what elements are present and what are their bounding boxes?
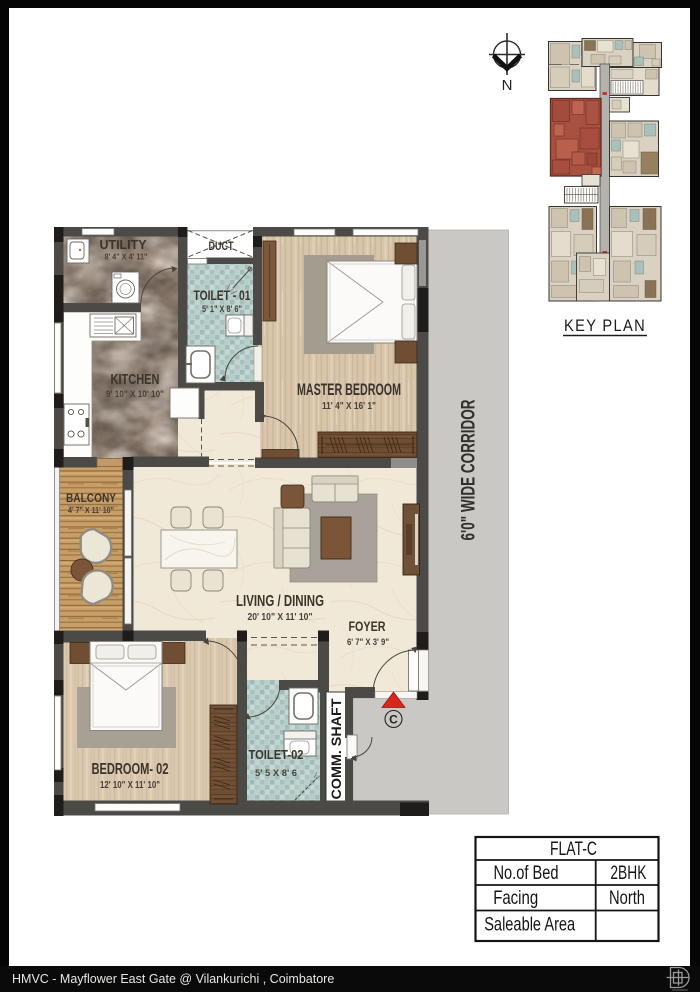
svg-text:MASTER BEDROOM: MASTER BEDROOM (297, 381, 401, 399)
svg-text:North: North (609, 887, 645, 909)
svg-text:11' 4" X 16' 1": 11' 4" X 16' 1" (322, 400, 376, 412)
svg-text:5' 5 X 8' 6: 5' 5 X 8' 6 (255, 768, 297, 779)
svg-text:5' 1" X 8' 6": 5' 1" X 8' 6" (202, 304, 242, 314)
svg-text:UTILITY: UTILITY (100, 238, 148, 252)
svg-text:LIVING / DINING: LIVING / DINING (236, 593, 324, 610)
svg-text:No.of Bed: No.of Bed (494, 862, 559, 884)
svg-text:COMM. SHAFT: COMM. SHAFT (328, 698, 344, 799)
svg-text:9' 10" X 10' 10": 9' 10" X 10' 10" (106, 389, 164, 400)
svg-text:4' 7" X 11' 10": 4' 7" X 11' 10" (68, 505, 114, 515)
svg-text:BALCONY: BALCONY (66, 493, 116, 505)
svg-text:6' 7" X 3' 9": 6' 7" X 3' 9" (347, 637, 389, 648)
svg-text:TOILET - 01: TOILET - 01 (194, 288, 251, 303)
svg-text:N: N (502, 77, 513, 94)
svg-text:FLAT-C: FLAT-C (550, 838, 597, 860)
svg-text:12' 10" X 11' 10": 12' 10" X 11' 10" (100, 780, 160, 791)
svg-text:20' 10" X 11' 10": 20' 10" X 11' 10" (248, 612, 313, 623)
svg-text:C: C (389, 713, 398, 727)
svg-text:Saleable Area: Saleable Area (484, 914, 575, 936)
svg-text:FOYER: FOYER (349, 619, 386, 634)
svg-text:HMVC - Mayflower East Gate @ V: HMVC - Mayflower East Gate @ Vilankurich… (12, 972, 334, 986)
svg-text:KITCHEN: KITCHEN (111, 372, 160, 388)
svg-text:2BHK: 2BHK (610, 862, 646, 884)
svg-text:BEDROOM- 02: BEDROOM- 02 (92, 761, 169, 778)
svg-text:KEY PLAN: KEY PLAN (564, 317, 646, 335)
svg-text:DUCT: DUCT (209, 241, 234, 253)
svg-text:TOILET-02: TOILET-02 (249, 747, 304, 762)
svg-text:6'0" WIDE CORRIDOR: 6'0" WIDE CORRIDOR (459, 399, 480, 540)
svg-text:8' 4" X 4' 11": 8' 4" X 4' 11" (105, 252, 148, 262)
svg-text:Facing: Facing (493, 887, 538, 909)
